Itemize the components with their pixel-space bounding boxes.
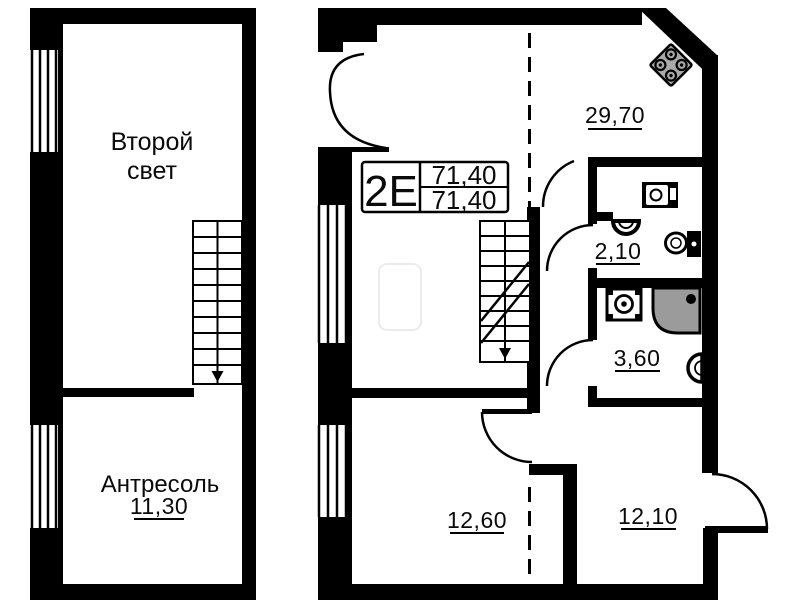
area-label-room-left: 12,60 xyxy=(447,507,507,533)
unit-info-box: 2Е 71,40 71,40 xyxy=(362,160,508,216)
wall xyxy=(347,205,352,343)
area-label-mezzanine: 11,30 xyxy=(130,493,188,519)
sink-icon xyxy=(688,354,703,382)
wall xyxy=(318,8,642,25)
wall xyxy=(702,55,718,473)
unit-living-area: 71,40 xyxy=(431,185,496,215)
wall xyxy=(318,163,352,205)
floor-plan-canvas: 2Е 71,40 71,40 xyxy=(0,0,799,600)
wall xyxy=(30,152,63,425)
door-leaf xyxy=(482,409,532,414)
floor-plan: 2Е 71,40 71,40 xyxy=(0,0,799,600)
area-label-room-right: 12,10 xyxy=(618,503,678,529)
balcony-door-arc-icon xyxy=(712,474,767,529)
wall xyxy=(318,24,343,52)
bath-door-arc-icon xyxy=(547,340,593,386)
wall xyxy=(588,398,706,407)
entrance-door-arc-icon xyxy=(330,54,386,148)
wall xyxy=(347,425,352,517)
wall xyxy=(703,528,718,584)
wall xyxy=(343,24,377,42)
door-leaf xyxy=(705,526,768,533)
unit-type-label: 2Е xyxy=(364,167,418,216)
sink-icon xyxy=(613,221,639,234)
toilet-icon xyxy=(666,231,702,257)
wall xyxy=(318,517,352,584)
wc-door-arc-icon xyxy=(547,225,593,271)
area-label-wc: 2,10 xyxy=(595,238,642,264)
area-label-bath: 3,60 xyxy=(614,345,661,371)
windows xyxy=(32,50,346,528)
window-icon xyxy=(32,425,56,528)
wall xyxy=(30,528,63,584)
wall xyxy=(30,24,63,50)
window-icon xyxy=(319,425,346,517)
water-heater-icon xyxy=(642,182,678,208)
wall xyxy=(352,388,528,398)
wall xyxy=(318,343,352,425)
wall xyxy=(242,8,256,600)
wall xyxy=(588,157,702,167)
wall xyxy=(30,8,256,24)
room-label-second-light-2: свет xyxy=(127,157,178,185)
shower-icon xyxy=(653,288,700,333)
stairs-left xyxy=(193,221,242,384)
area-label-living: 29,70 xyxy=(585,102,645,128)
washer-icon xyxy=(607,289,641,320)
wall xyxy=(30,584,256,600)
window-icon xyxy=(319,205,346,343)
hall-door-arc-icon xyxy=(543,161,574,207)
wall xyxy=(588,288,597,340)
wall xyxy=(58,425,63,528)
window-icon xyxy=(32,50,56,152)
wall xyxy=(588,212,613,221)
room-label-second-light-1: Второй xyxy=(111,128,194,156)
stairs-right xyxy=(480,221,530,362)
wall xyxy=(318,147,352,163)
wall xyxy=(318,584,718,600)
wall xyxy=(58,50,63,152)
scan-ghost-artifact xyxy=(379,264,421,330)
wall xyxy=(63,388,194,397)
wall xyxy=(563,464,577,584)
room-door-arc-icon xyxy=(482,412,532,462)
